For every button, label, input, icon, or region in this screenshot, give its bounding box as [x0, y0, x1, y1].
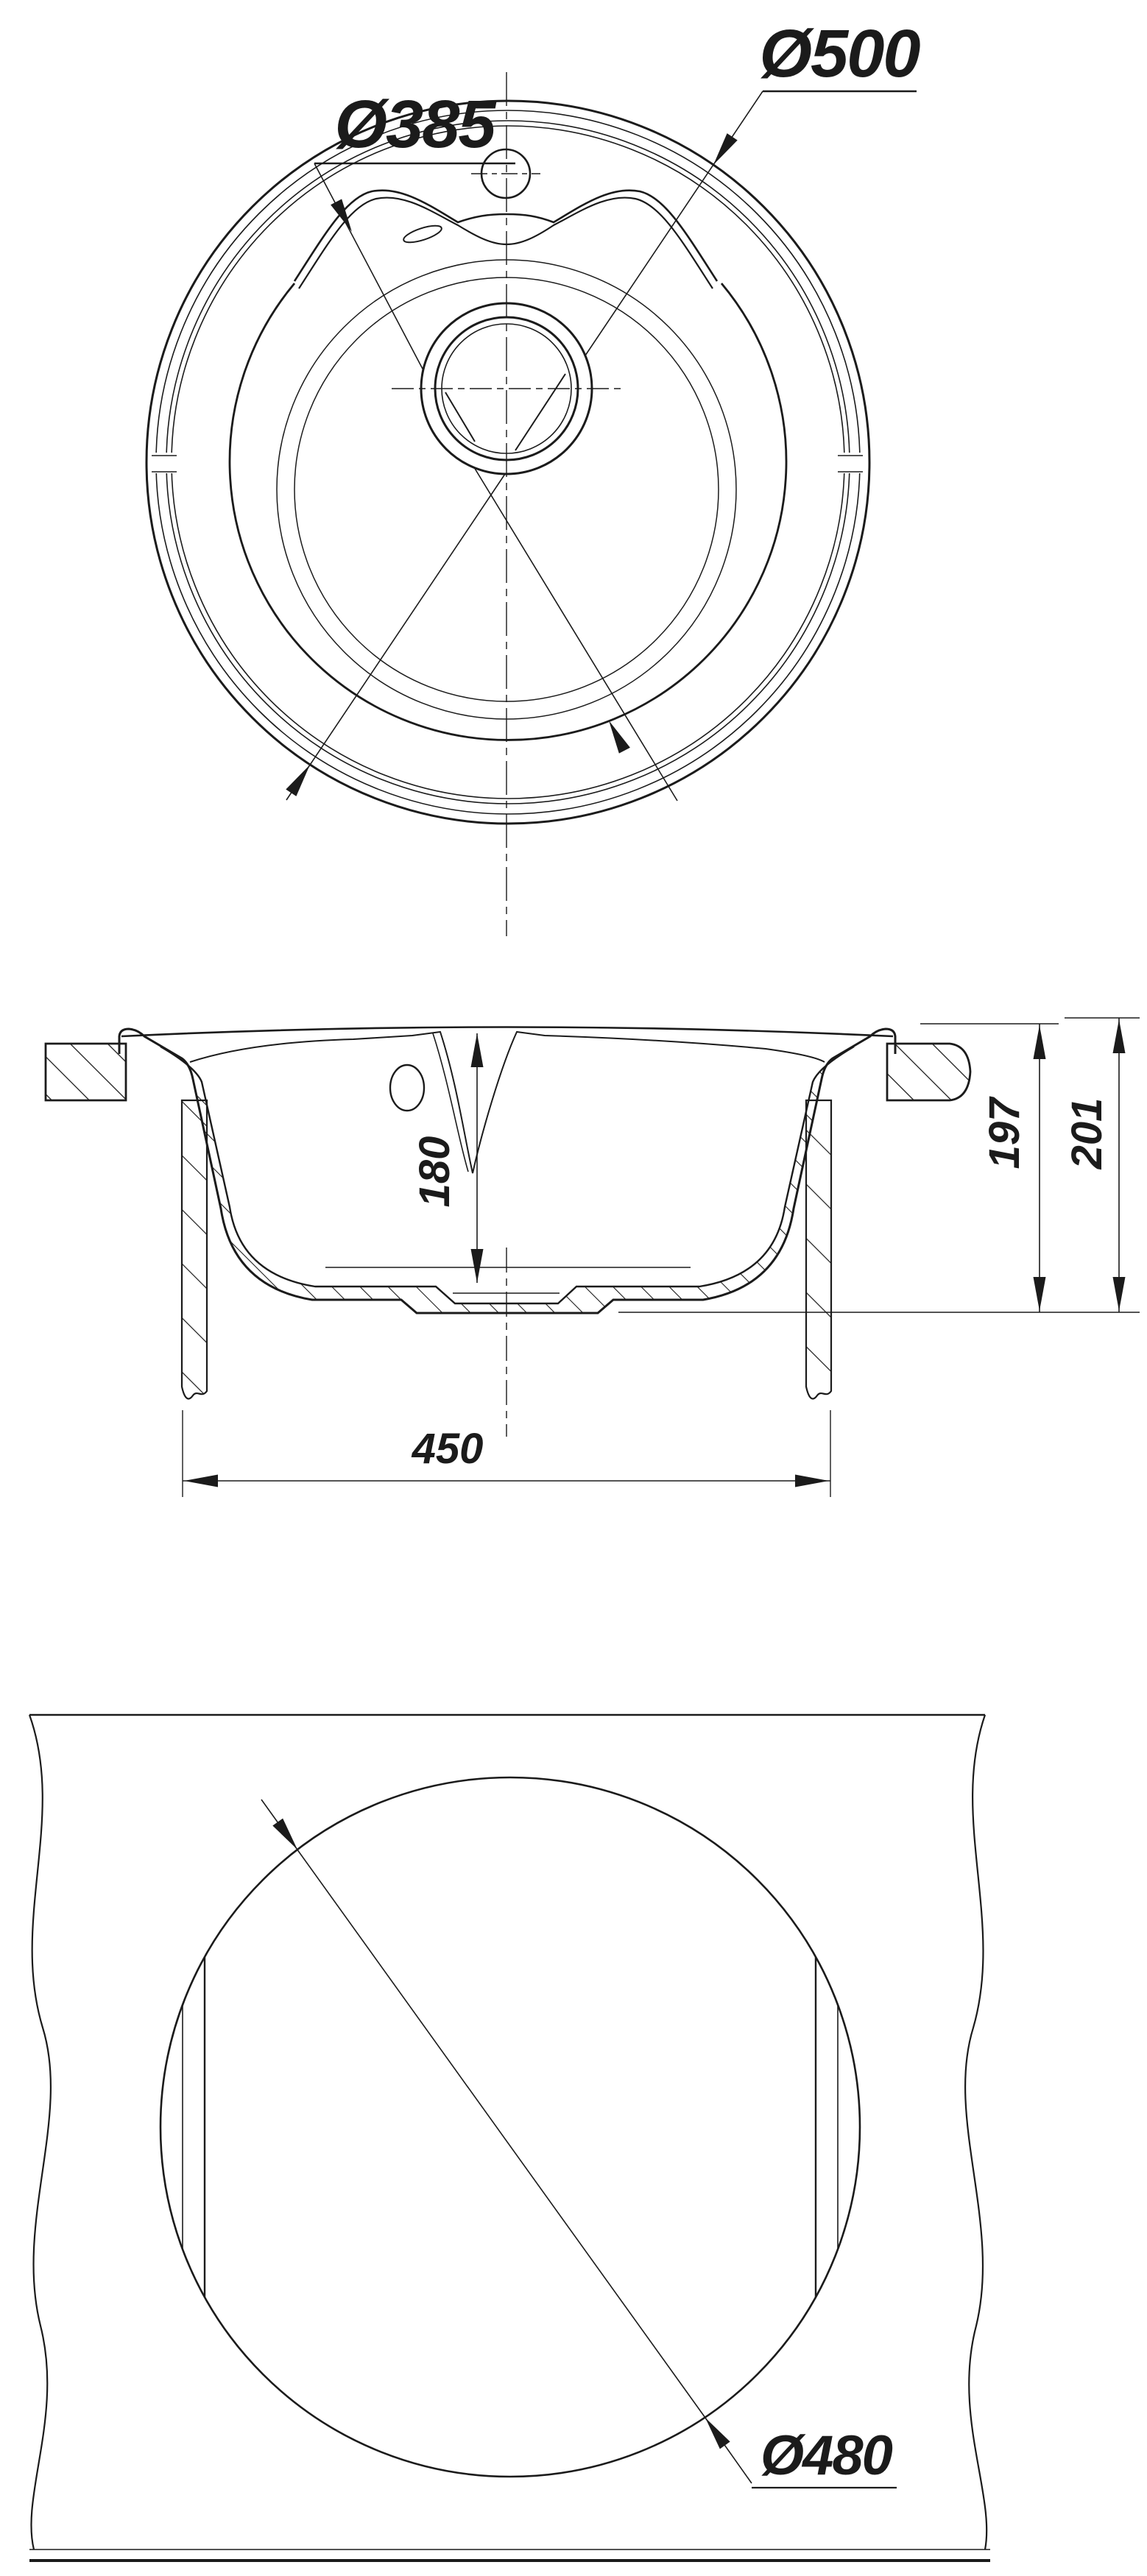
dim-385: Ø385 [314, 87, 677, 801]
rim-top-edge [121, 1027, 893, 1037]
sink-outer-contour [119, 1029, 895, 1313]
dim-label-450: 450 [412, 1425, 484, 1473]
sink-inner-wall-left [160, 1047, 854, 1303]
deck-wave-lower [299, 198, 713, 289]
rim-clip-notch-right [838, 453, 863, 473]
dim-label-180: 180 [411, 1136, 459, 1208]
dim-480: Ø480 [261, 1800, 897, 2488]
dim-label-480: Ø480 [760, 2424, 893, 2487]
panel-left [182, 1100, 207, 1398]
cutout-circle [160, 1777, 860, 2477]
drain [392, 303, 623, 474]
torn-edge-left [29, 1715, 51, 2550]
dim-201: 201 [1063, 1018, 1140, 1312]
section-view: 180 197 201 450 [46, 1018, 1140, 1497]
countertop-right [887, 1044, 970, 1100]
dim-label-201: 201 [1063, 1098, 1111, 1170]
cutout-view: Ø480 [29, 1715, 990, 2561]
torn-edge-right [965, 1715, 987, 2550]
sink-wall-section [144, 1036, 870, 1313]
countertop-left [46, 1044, 126, 1100]
dim-450: 450 [183, 1410, 830, 1497]
bowl-rim-arc [230, 283, 786, 740]
overflow-slot [402, 222, 443, 246]
faucet-hole-section [390, 1065, 424, 1111]
outer-rim-circle [147, 101, 869, 824]
deck-edge-line [190, 1032, 825, 1173]
dim-label-385: Ø385 [334, 87, 497, 162]
dim-label-197: 197 [981, 1096, 1028, 1170]
drawing-sheet: Ø385 Ø500 [0, 0, 1147, 2576]
sink-technical-drawing: Ø385 Ø500 [0, 0, 1147, 2576]
rim-circle-4 [172, 126, 844, 799]
dim-label-500: Ø500 [759, 16, 920, 91]
top-view: Ø385 Ø500 [147, 16, 920, 936]
deck-wave-upper [294, 191, 717, 281]
dim-180: 180 [411, 1033, 484, 1283]
panel-right [806, 1100, 831, 1398]
rim-clip-notch-left [152, 453, 177, 473]
rim-circle-2 [156, 110, 860, 814]
